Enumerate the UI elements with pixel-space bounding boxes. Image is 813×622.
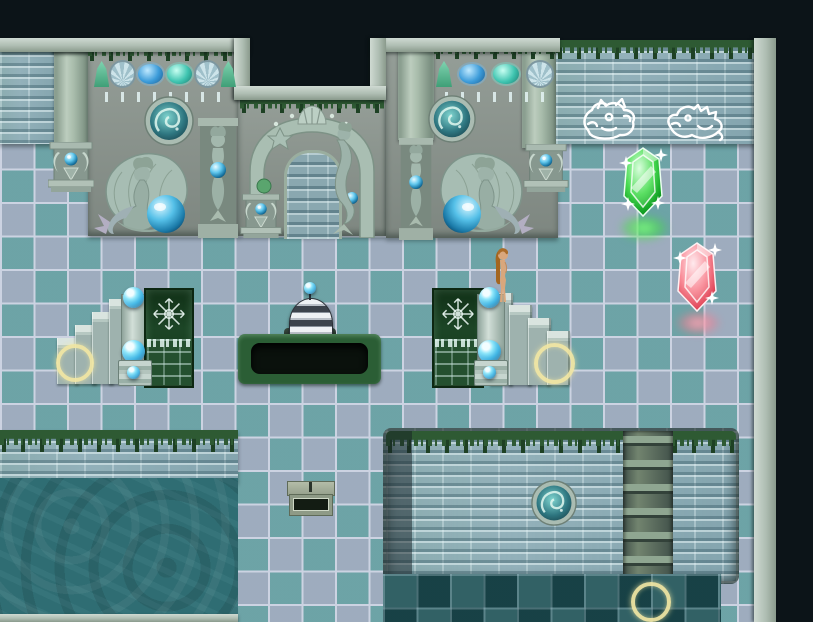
- sunken-chamber: [383, 428, 739, 584]
- event-ring-left[interactable]: [56, 344, 94, 382]
- gem-altar-left[interactable]: [48, 142, 94, 192]
- gem-altar-right[interactable]: [522, 144, 570, 192]
- pit-hole: [251, 343, 368, 374]
- gem-frieze-left: [92, 56, 238, 92]
- moss-brick-right: [556, 40, 756, 59]
- red-crystal[interactable]: [672, 241, 722, 313]
- gem-frieze-right: [434, 56, 556, 92]
- blue-gem-oval: [457, 62, 487, 86]
- mermaid-shell-statue-left: [90, 140, 200, 240]
- horse-spirit-drawing[interactable]: [578, 98, 648, 142]
- sign-slot: [293, 498, 329, 511]
- event-ring-bottom[interactable]: [631, 582, 671, 622]
- ledge-top-right: [370, 38, 560, 52]
- gem-altar-center[interactable]: [236, 194, 286, 238]
- leaf-fan-ornament: [221, 61, 236, 87]
- leaf-fan-ornament: [94, 61, 109, 87]
- mermaid-caryatid-left: [198, 118, 238, 238]
- pillar-left: [54, 44, 90, 154]
- chamber-moss: [386, 431, 736, 453]
- porthole-window-left: [144, 96, 194, 146]
- ladder[interactable]: [623, 431, 673, 581]
- orb-switch[interactable]: [127, 366, 140, 379]
- teal-gem-oval: [165, 62, 194, 86]
- map-border-right: [754, 38, 776, 622]
- green-crystal[interactable]: [618, 146, 668, 218]
- wall-brick-left: [0, 44, 58, 144]
- ledge-top-left: [0, 38, 250, 52]
- event-ring-right[interactable]: [534, 343, 575, 384]
- player-character[interactable]: [492, 246, 512, 310]
- green-crystal-glow: [618, 214, 670, 242]
- orb-switch[interactable]: [123, 287, 144, 308]
- chamber-shadow-edge: [386, 431, 412, 581]
- frost-crest: [150, 294, 188, 334]
- blue-gem-oval: [136, 62, 165, 86]
- teal-gem-oval: [491, 62, 521, 86]
- stone-sign[interactable]: [287, 481, 335, 516]
- game-viewport: [0, 0, 813, 622]
- frost-crest: [439, 294, 477, 334]
- water-pool: [0, 478, 238, 616]
- ice-bricks: [147, 339, 191, 385]
- shell-medallion: [526, 60, 554, 88]
- shell-medallion: [194, 60, 221, 88]
- leaf-fan-ornament: [436, 61, 452, 87]
- pool-ledge-moss: [0, 430, 238, 452]
- device-orb[interactable]: [304, 282, 316, 294]
- seahorse-spirit-drawing[interactable]: [664, 102, 732, 142]
- porthole-window-right: [428, 95, 476, 143]
- orb-switch[interactable]: [483, 366, 496, 379]
- sign-post: [309, 482, 312, 492]
- red-crystal-glow: [674, 310, 722, 336]
- shell-medallion: [109, 60, 136, 88]
- dark-pit: [238, 334, 381, 384]
- porthole-window-chamber: [531, 480, 577, 526]
- pool-south-lip: [0, 614, 238, 622]
